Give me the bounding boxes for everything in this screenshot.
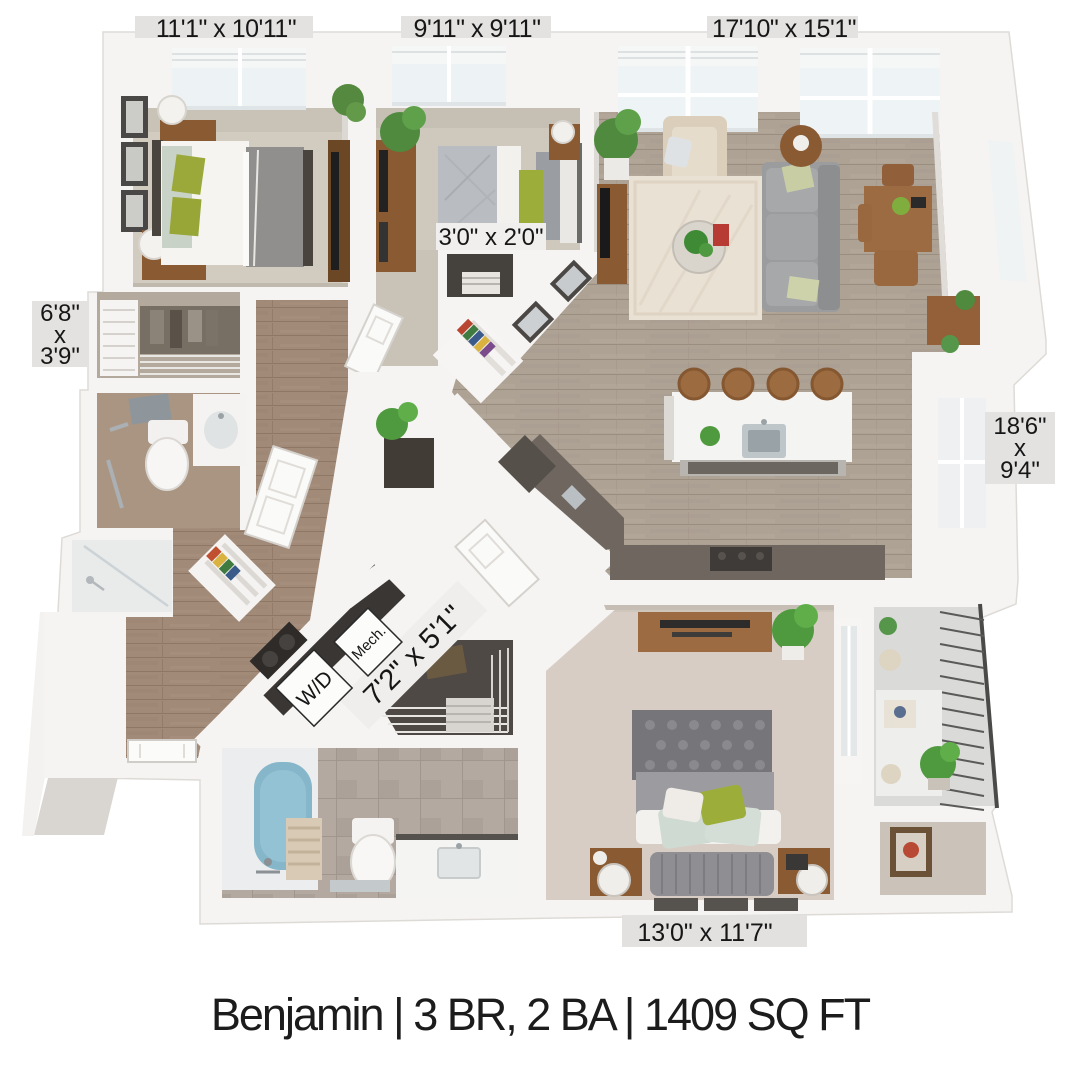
svg-text:Benjamin | 3 BR, 2 BA | 1409 S: Benjamin | 3 BR, 2 BA | 1409 SQ FT [211, 989, 871, 1040]
svg-text:3'0" x 2'0": 3'0" x 2'0" [439, 224, 544, 251]
svg-text:11'1" x 10'11": 11'1" x 10'11" [156, 15, 296, 43]
svg-text:9'4": 9'4" [1000, 457, 1040, 484]
svg-text:9'11" x 9'11": 9'11" x 9'11" [414, 15, 541, 43]
svg-text:17'10" x 15'1": 17'10" x 15'1" [712, 15, 856, 43]
svg-text:13'0" x 11'7": 13'0" x 11'7" [637, 919, 772, 947]
svg-text:3'9": 3'9" [40, 343, 80, 370]
